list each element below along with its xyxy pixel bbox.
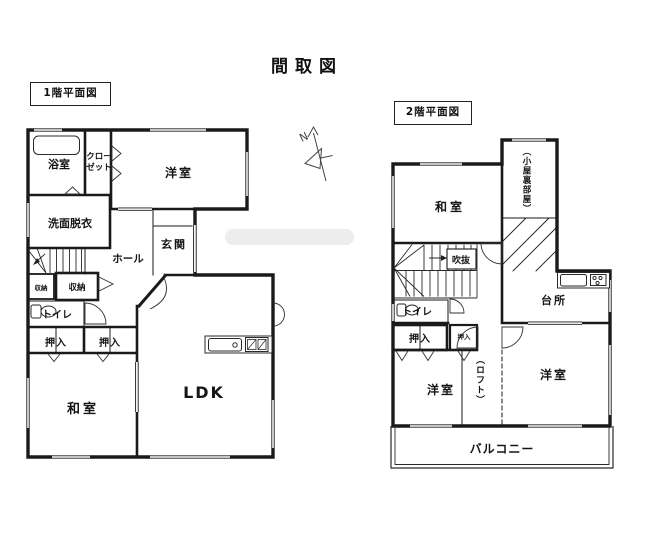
north-label: N [297, 130, 310, 145]
f2-room-label-japanese: 和室 [423, 198, 477, 215]
f2-room-label-oshiire-small: 押入 [452, 331, 476, 341]
f1-room-label-oshiire-left: 押入 [41, 334, 71, 349]
f1-room-label-storage: 収納 [62, 281, 92, 293]
f2-room-label-toilet: トイレ [398, 303, 436, 318]
f2-room-label-loft: （ロフト） [473, 355, 486, 423]
f1-room-label-oshiire-right: 押入 [95, 334, 125, 349]
f1-room-label-hall: ホール [107, 251, 149, 266]
f2-room-label-western-right: 洋室 [527, 366, 581, 383]
f2-room-label-attic: （小屋裏部屋） [520, 147, 532, 225]
f2-room-label-oshiire-left: 押入 [404, 330, 436, 345]
f2-room-label-western-left: 洋室 [414, 381, 468, 398]
floor1-title: 1階平面図 [30, 82, 111, 106]
kitchen-counter-icon [205, 336, 272, 353]
f1-room-label-ldk: LDK [173, 383, 235, 402]
f1-room-label-toilet: トイレ [39, 306, 75, 321]
page-title: 間取図 [242, 52, 372, 77]
north-arrow-icon: N [297, 127, 332, 181]
f1-room-label-closet: クロー ゼット [84, 152, 114, 173]
floor-plan-drawing: N [0, 0, 645, 534]
f1-closet-line2: ゼット [86, 163, 112, 173]
floor2-title: 2階平面図 [394, 101, 472, 125]
floor-plan-page: N 間取図 1階平面図 2階平面図 浴室 クロー ゼット 洋室 洗面脱衣 玄関 … [0, 0, 645, 534]
f1-room-label-japanese: 和室 [55, 398, 111, 417]
f1-room-label-bath: 浴室 [39, 156, 79, 172]
f1-room-label-storage-small: 収納 [31, 282, 51, 292]
bathtub-icon [34, 136, 80, 155]
f1-closet-line1: クロー [86, 152, 112, 162]
f2-room-label-balcony: バルコニー [458, 440, 546, 457]
floor1-stairs-icon [29, 248, 82, 273]
f1-room-label-western: 洋室 [153, 164, 205, 181]
f1-room-label-washroom: 洗面脱衣 [45, 215, 95, 231]
sink-icon-2f [561, 275, 587, 287]
f1-room-label-entrance: 玄関 [151, 236, 197, 252]
f2-room-label-void: 吹抜 [447, 253, 475, 266]
f2-room-label-kitchen: 台所 [531, 292, 577, 308]
kitchen-counter-icon-2f [558, 273, 610, 289]
attic-hatch [502, 218, 557, 271]
